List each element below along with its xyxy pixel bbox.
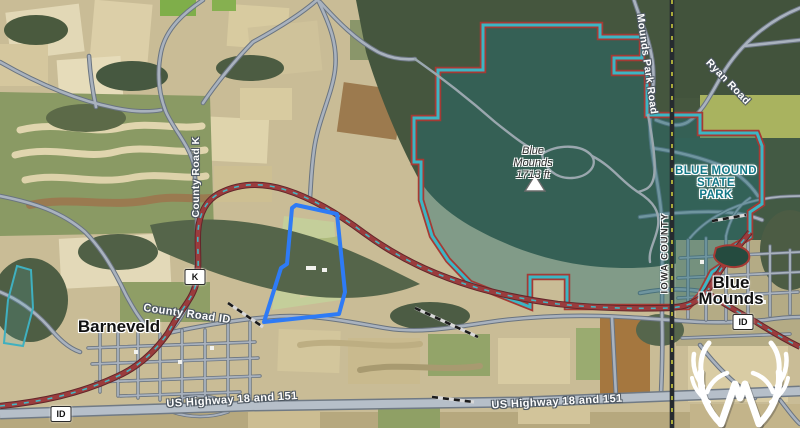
- pond: [714, 245, 749, 267]
- route-shield-id-west: ID: [51, 406, 72, 422]
- whitetail-antler-logo-icon: [681, 336, 799, 428]
- route-shield-k: K: [185, 269, 206, 285]
- satellite-map-canvas[interactable]: [0, 0, 800, 428]
- map-viewport[interactable]: Barneveld Blue Mounds Blue Mounds 1713 f…: [0, 0, 800, 428]
- route-shield-id-east: ID: [733, 314, 754, 330]
